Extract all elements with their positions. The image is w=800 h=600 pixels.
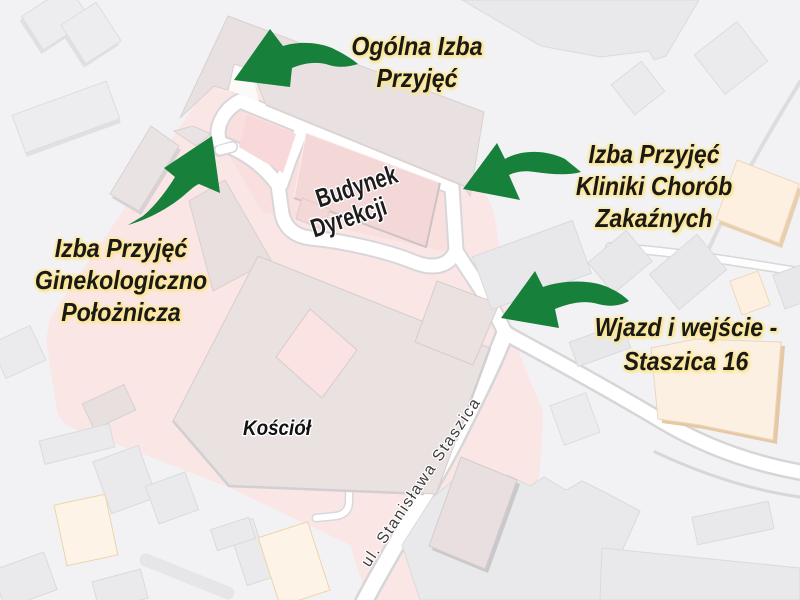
svg-text:Kościół: Kościół [243, 417, 312, 440]
